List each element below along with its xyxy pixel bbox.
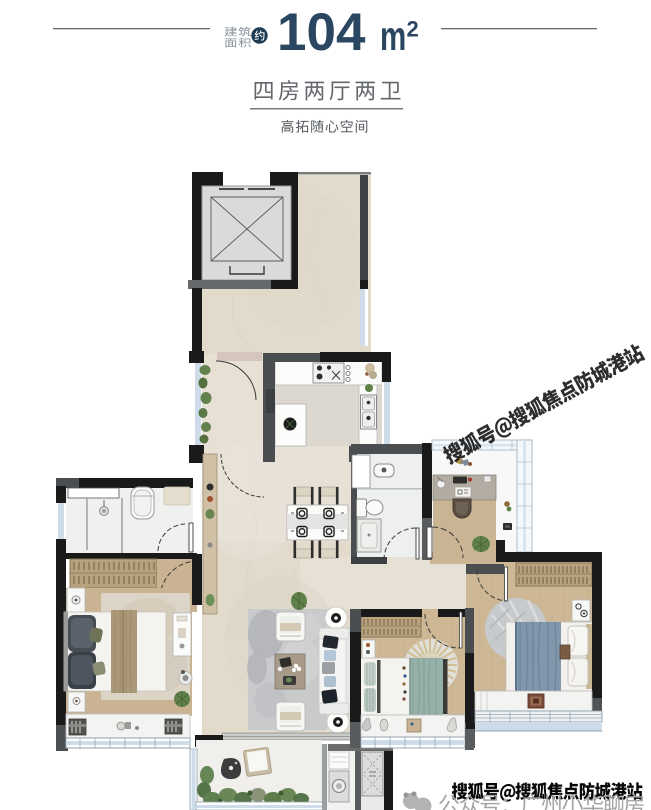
svg-text:104: 104 [277, 3, 366, 62]
svg-text:2: 2 [407, 17, 419, 42]
svg-text:m: m [380, 13, 406, 59]
